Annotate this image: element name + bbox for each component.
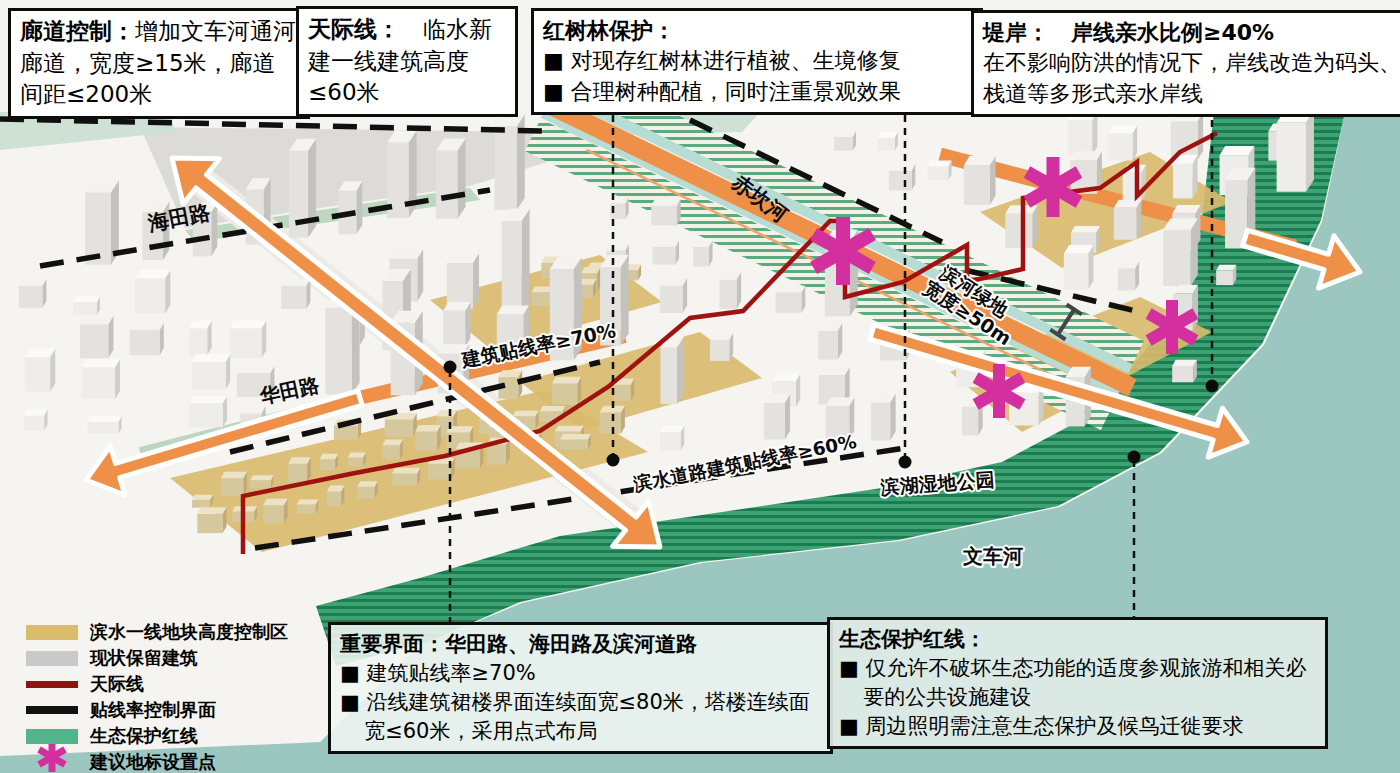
legend-item-retained-buildings: 现状保留建筑	[26, 645, 288, 671]
legend-item-landmark: 建议地标设置点	[26, 749, 288, 773]
legend-item-eco-redline: 生态保护红线	[26, 723, 288, 749]
legend: 滨水一线地块高度控制区 现状保留建筑 天际线 贴线率控制界面 生态保护红线 建议…	[26, 619, 288, 773]
legend-swatch-height-zone	[26, 625, 78, 640]
legend-item-interface: 贴线率控制界面	[26, 697, 288, 723]
legend-item-skyline: 天际线	[26, 671, 288, 697]
legend-swatch-skyline	[26, 681, 78, 688]
callout-corridor-control: 廊道控制：增加文车河通河廊道，宽度≥15米，廊道间距≤200米	[8, 8, 310, 119]
urban-design-planning-map: 海田路 华田路 军 民 路 赤坎河 建筑贴线率≥70% 滨河绿地 宽度≥50m …	[0, 0, 1400, 773]
callout-key-interface: 重要界面：华田路、海田路及滨河道路 ■ 建筑贴线率≥70% ■ 沿线建筑裙楼界面…	[328, 622, 833, 754]
legend-swatch-retained	[26, 651, 78, 666]
legend-swatch-eco	[26, 729, 78, 744]
callout-mangrove: 红树林保护： ■ 对现存红树林进行植被、生境修复 ■ 合理树种配植，同时注重景观…	[531, 8, 983, 115]
callout-eco-redline: 生态保护红线： ■ 仅允许不破坏生态功能的适度参观旅游和相关必要的公共设施建设 …	[827, 617, 1328, 749]
legend-swatch-interface	[26, 706, 78, 714]
map-label-wenche-river: 文车河	[963, 545, 1023, 568]
legend-item-height-zone: 滨水一线地块高度控制区	[26, 619, 288, 645]
callout-skyline: 天际线： 临水新建一线建筑高度≤60米	[296, 6, 518, 117]
callout-embankment: 堤岸： 岸线亲水比例≥40% 在不影响防洪的情况下，岸线改造为码头、栈道等多形式…	[971, 10, 1400, 117]
